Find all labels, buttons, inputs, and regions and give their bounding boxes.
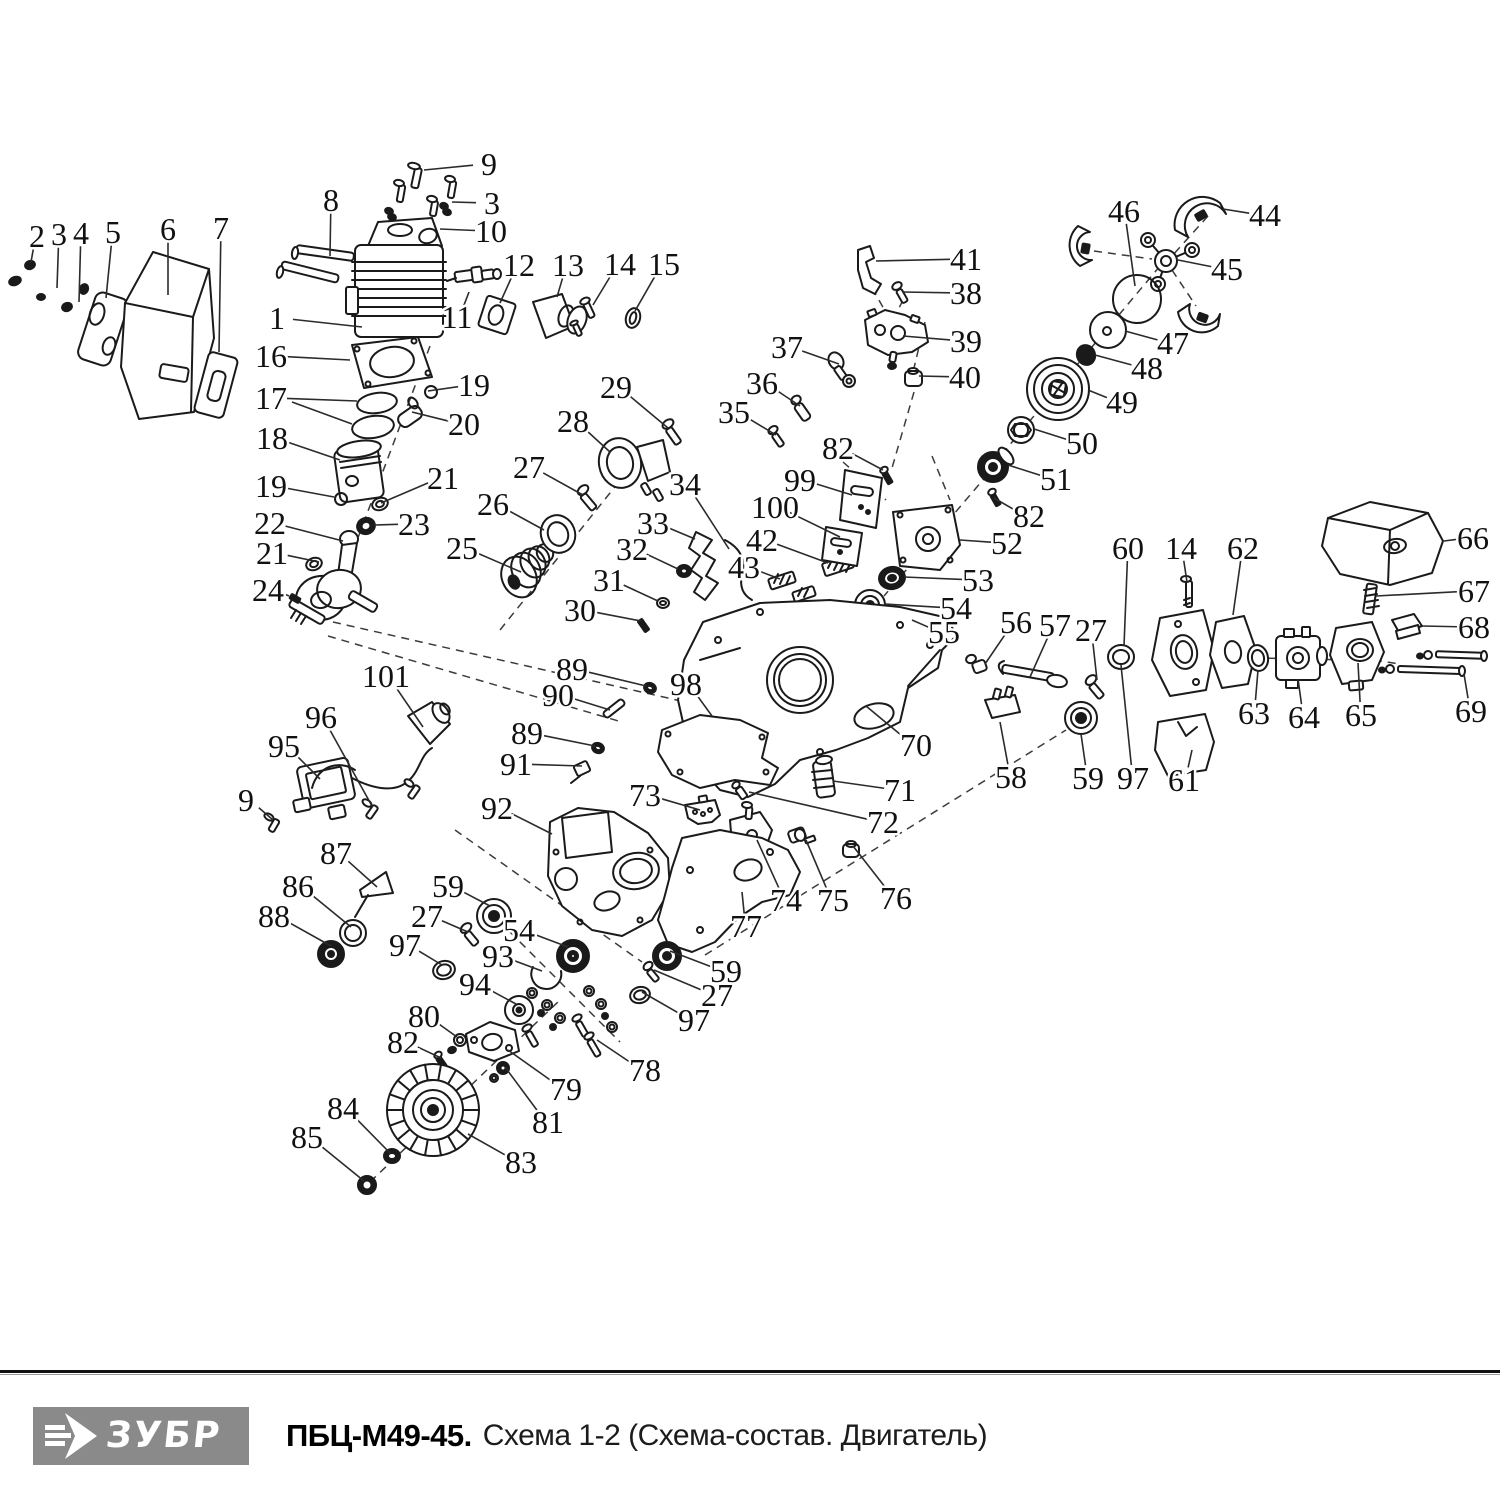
part-shape [61,302,73,313]
callout-19: 19 [458,367,490,403]
callout-73: 73 [629,777,661,813]
callout-33: 33 [637,505,669,541]
leader-line-60 [1124,561,1127,646]
leader-line-33 [668,528,695,539]
callout-66: 66 [1457,520,1489,556]
part-shape [1076,713,1086,723]
callout-101: 101 [362,658,410,694]
part-shape [578,920,583,925]
leader-line-85 [320,1145,364,1181]
part-shape [403,778,415,789]
part-shape [478,295,516,335]
part-shape [525,1031,538,1048]
part-shape [363,1181,372,1190]
leader-line-88 [288,922,331,946]
part-shape [689,532,718,600]
callout-39: 39 [950,323,982,359]
callout-4: 4 [73,215,89,251]
leader-line-4 [79,246,81,302]
leader-line [292,402,352,424]
part-shape [293,797,311,812]
part-shape [888,574,897,581]
part-shape [352,337,432,388]
part-shape [1284,629,1294,637]
part-shape [1046,673,1068,688]
callout-7: 7 [213,210,229,246]
leader-line-31 [624,585,658,601]
leader-line-5 [106,245,111,298]
callout-76: 76 [880,880,912,916]
part-shape [594,745,601,751]
leader-line-27 [654,970,702,990]
callout-2: 2 [29,218,45,254]
leader-line-67 [1376,592,1458,596]
part-shape [840,470,882,528]
part-shape [1286,680,1298,688]
callout-20: 20 [448,406,480,442]
callout-13: 13 [552,247,584,283]
callout-57: 57 [1039,607,1071,643]
leader-line-26 [507,510,544,530]
leader-line-75 [806,840,826,888]
leader-line-82 [852,454,883,470]
callout-18: 18 [256,420,288,456]
footer-divider-shadow [0,1374,1500,1375]
part-shape [1386,665,1394,673]
callout-98: 98 [670,666,702,702]
part-shape [536,510,581,557]
leader-line-48 [1095,355,1131,365]
part-shape [1379,668,1385,673]
callout-24: 24 [252,572,284,608]
part-shape [1090,312,1126,348]
part-shape [1185,243,1199,257]
part-shape [425,386,437,398]
part-shape [1081,243,1089,253]
part-shape [699,795,708,802]
callout-37: 37 [771,329,803,365]
part-shape [355,895,368,917]
part-shape [493,269,501,279]
callout-21: 21 [427,460,459,496]
leader-line-24 [283,594,289,596]
part-shape [304,556,323,573]
leader-line-87 [348,861,377,887]
part-shape [431,958,457,981]
leader-line-8 [330,213,331,256]
callout-6: 6 [160,211,176,247]
leader-line-52 [960,540,991,542]
leader-line-53 [904,577,962,579]
callout-71: 71 [884,772,916,808]
leader-line-50 [1034,429,1067,439]
leader-line-86 [311,894,351,927]
part-shape [328,804,346,819]
part-shape [8,275,22,287]
part-shape [427,195,438,203]
footer-divider [0,1370,1500,1373]
part-shape [989,463,997,471]
part-shape [296,245,355,261]
part-shape [663,952,671,960]
part-shape [838,550,842,554]
leader-line-92 [511,814,552,834]
part-shape [340,920,366,946]
part-shape [652,488,663,501]
part-shape [328,951,334,957]
callout-10: 10 [475,213,507,249]
part-shape [550,1024,556,1030]
part-shape [394,179,405,187]
callout-90: 90 [542,677,574,713]
callout-12: 12 [503,247,535,283]
part-shape [1424,651,1432,659]
part-shape [489,911,499,921]
leader-line-49 [1088,390,1107,398]
leader-line-23 [374,524,398,525]
part-shape [301,616,306,624]
leader-line-40 [919,376,949,377]
callout-88: 88 [258,898,290,934]
part-shape [538,1010,544,1016]
callout-9: 9 [238,782,254,818]
part-shape [602,1013,608,1019]
callout-36: 36 [746,365,778,401]
leader-line-97 [419,951,442,965]
page-background: 1234567893101112131415161718192019212223… [0,0,1500,1500]
part-shape [571,776,580,783]
callout-72: 72 [867,804,899,840]
callout-97: 97 [1117,760,1149,796]
callout-69: 69 [1455,693,1487,729]
callout-64: 64 [1288,699,1320,735]
callout-8: 8 [323,182,339,218]
part-shape [507,574,522,591]
leader-line-83 [468,1134,507,1156]
part-shape [1141,233,1155,247]
part-shape [37,294,45,300]
callout-94: 94 [459,966,491,1002]
callout-58: 58 [995,759,1027,795]
callout-96: 96 [305,699,337,735]
part-shape [352,748,432,788]
leader-line-54 [534,934,568,947]
leader-line-59 [462,892,490,906]
part-shape [397,185,406,203]
part-shape [447,1046,457,1054]
leader-line-93 [513,960,542,971]
callout-59: 59 [1072,760,1104,796]
callout-78: 78 [629,1052,661,1088]
leader-line-7 [219,241,221,352]
part-shape [646,685,653,691]
zubr-logo: ЗУБР [33,1407,249,1465]
callout-49: 49 [1106,384,1138,420]
part-shape [1481,651,1487,661]
callout-45: 45 [1211,251,1243,287]
part-shape [428,1105,438,1115]
callout-82: 82 [822,430,854,466]
callout-15: 15 [648,246,680,282]
callout-95: 95 [268,728,300,764]
part-shape [571,954,575,958]
part-shape [792,586,816,602]
callout-17: 17 [255,380,287,416]
footer-title: ПБЦ-М49-45. Схема 1-2 (Схема-состав. Дви… [286,1407,987,1465]
leader-line-38 [903,292,950,293]
part-shape [867,309,877,317]
callout-92: 92 [481,790,513,826]
callout-19: 19 [255,468,287,504]
callout-31: 31 [593,562,625,598]
part-shape [356,390,398,415]
callout-30: 30 [564,592,596,628]
leader-line-10 [440,229,475,230]
part-shape [388,1153,396,1159]
part-shape [573,761,590,777]
callout-29: 29 [600,369,632,405]
part-shape [396,404,425,430]
callout-25: 25 [446,530,478,566]
callout-34: 34 [669,466,701,502]
callout-5: 5 [105,214,121,250]
callout-54: 54 [503,912,535,948]
leader-line-72 [749,792,867,819]
part-shape [1349,680,1364,690]
callout-60: 60 [1112,530,1144,566]
callout-43: 43 [728,549,760,585]
callout-3: 3 [51,216,67,252]
part-shape [859,505,863,509]
callout-70: 70 [900,727,932,763]
callout-82: 82 [1013,498,1045,534]
callout-28: 28 [557,403,589,439]
leader-line-80 [437,1023,457,1037]
leader-line-91 [532,764,582,766]
construction-axis [1172,270,1196,306]
construction-axis [892,392,914,468]
part-shape [858,246,881,294]
part-shape [866,510,870,514]
callout-16: 16 [255,338,287,374]
callout-84: 84 [327,1090,359,1126]
callout-44: 44 [1249,197,1281,233]
leader-line-66 [1444,539,1457,541]
callout-48: 48 [1131,350,1163,386]
leader-line-22 [286,526,343,541]
callout-1: 1 [269,300,285,336]
zubr-logo-text: ЗУБР [104,1418,223,1454]
leader-line-90 [573,699,610,710]
leader-line-16 [287,357,350,360]
leader-line-97 [1121,665,1131,765]
callout-79: 79 [550,1071,582,1107]
part-shape [896,288,908,303]
leader-line-19 [287,488,334,497]
leader-line-45 [1178,260,1211,267]
callout-82: 82 [387,1024,419,1060]
leader-line-78 [597,1040,631,1063]
leader-line-32 [647,554,678,569]
callout-56: 56 [1000,604,1032,640]
leader-line-58 [1000,722,1008,764]
leader-line-79 [508,1050,553,1082]
part-shape [948,558,953,563]
leader-line-44 [1223,209,1249,213]
part-shape [1436,651,1484,659]
part-shape [411,167,422,188]
leader-line-30 [596,612,641,621]
part-shape [466,1022,519,1061]
leader-line-62 [1233,561,1241,615]
leader-line-41 [876,259,950,261]
leader-line-3 [57,247,58,288]
callout-27: 27 [411,898,443,934]
part-shape [624,307,643,330]
leader-line-1 [293,319,362,327]
part-shape [910,315,920,323]
callout-9: 9 [481,146,497,182]
callout-74: 74 [770,882,802,918]
part-shape [1276,636,1320,680]
part-shape [1152,610,1214,696]
callout-75: 75 [817,882,849,918]
callout-50: 50 [1066,425,1098,461]
part-shape [888,363,896,369]
leader-line-84 [355,1117,390,1153]
part-shape [517,1008,522,1013]
leader-line-9 [424,165,473,170]
callout-63: 63 [1238,695,1270,731]
leader-line-71 [833,781,884,788]
part-shape [408,162,421,170]
part-shape [296,613,301,621]
part-shape [355,245,443,337]
callout-77: 77 [730,908,762,944]
part-shape [291,247,299,260]
callout-23: 23 [398,506,430,542]
leader-line-3 [452,202,476,203]
exploded-diagram: 1234567893101112131415161718192019212223… [0,0,1500,1370]
callout-27: 27 [513,449,545,485]
part-shape [24,260,36,271]
callout-68: 68 [1458,609,1490,645]
callout-81: 81 [532,1104,564,1140]
part-shape [351,413,396,441]
leader-line-97 [642,992,680,1014]
leader-line-42 [777,544,828,563]
callout-21: 21 [256,535,288,571]
callout-61: 61 [1168,762,1200,798]
callout-40: 40 [949,359,981,395]
part-shape [742,802,752,809]
callout-11: 11 [442,299,473,335]
callout-100: 100 [751,489,799,525]
leader-line-19 [428,387,458,391]
part-shape [1155,250,1177,272]
construction-axis [1094,251,1152,259]
part-shape [767,647,833,713]
part-shape [1005,686,1013,697]
part-shape [1302,627,1310,637]
callout-27: 27 [701,977,733,1013]
part-shape [681,569,687,574]
part-shape [657,598,669,608]
part-shape [843,375,855,387]
callout-67: 67 [1458,573,1490,609]
leader-line-27 [543,473,583,495]
part-shape [442,208,452,216]
part-shape [985,695,1020,718]
leader-line-17 [287,398,357,401]
part-shape [276,265,285,278]
callout-91: 91 [500,746,532,782]
part-shape [1398,666,1462,674]
part-shape [595,435,645,492]
part-shape [348,590,378,613]
leader-line-29 [629,395,668,428]
callout-62: 62 [1227,530,1259,566]
scheme-subtitle: Схема 1-2 (Схема-состав. Двигатель) [483,1419,987,1453]
callout-14: 14 [604,246,636,282]
callout-38: 38 [950,275,982,311]
part-shape [346,287,358,314]
callout-14: 14 [1165,530,1197,566]
callout-55: 55 [928,614,960,650]
part-shape [448,181,457,199]
callout-27: 27 [1075,612,1107,648]
part-shape [445,175,456,183]
callout-65: 65 [1345,697,1377,733]
callout-51: 51 [1040,461,1072,497]
part-shape [637,440,670,481]
callout-83: 83 [505,1144,537,1180]
model-number: ПБЦ-М49-45. [286,1418,472,1454]
part-shape [1417,654,1423,659]
leader-line-68 [1422,626,1458,627]
callout-46: 46 [1108,193,1140,229]
part-shape [640,482,651,495]
part-shape [1317,647,1327,665]
part-shape [1197,313,1208,323]
callout-26: 26 [477,486,509,522]
part-shape [531,967,561,989]
leader-line-18 [287,442,340,460]
zubr-logo-icon [43,1411,99,1461]
part-shape [889,352,897,363]
leader-line-89 [588,672,646,686]
part-shape [291,610,296,618]
part-shape [772,433,785,448]
callout-41: 41 [950,241,982,277]
leader-line-51 [1008,465,1041,475]
construction-axis [932,456,950,500]
callout-87: 87 [320,835,352,871]
leader-line-89 [543,735,595,746]
leader-line-47 [1125,331,1157,340]
part-shape [281,261,339,283]
leader-line-21 [381,483,428,503]
callout-85: 85 [291,1119,323,1155]
part-shape [993,688,1001,699]
